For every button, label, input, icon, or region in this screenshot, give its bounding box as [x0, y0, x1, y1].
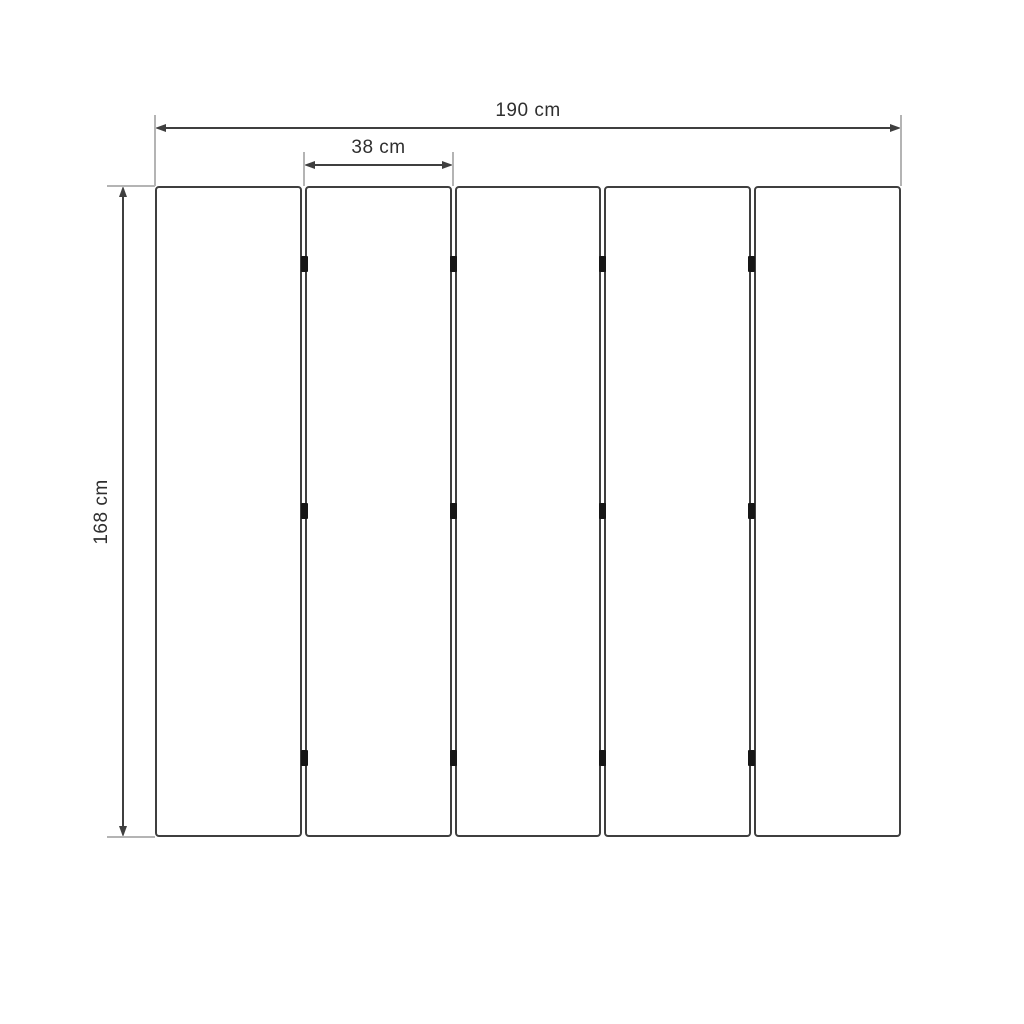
- panel-width-dimension-line: [308, 164, 449, 166]
- panel: [455, 186, 602, 837]
- hinge: [450, 256, 457, 272]
- hinge: [748, 503, 755, 519]
- arrow-left-icon: [304, 161, 315, 169]
- total-width-dimension-line: [160, 127, 896, 129]
- extension-line: [107, 185, 155, 187]
- panel: [754, 186, 901, 837]
- height-dimension-line: [122, 192, 124, 831]
- panel: [604, 186, 751, 837]
- height-label: 168 cm: [91, 442, 113, 582]
- hinge: [599, 256, 606, 272]
- hinge: [301, 503, 308, 519]
- hinge: [748, 750, 755, 766]
- hinge: [450, 503, 457, 519]
- hinge: [301, 750, 308, 766]
- total-width-label: 190 cm: [428, 100, 628, 122]
- extension-line: [303, 152, 305, 186]
- panel: [305, 186, 452, 837]
- folding-screen-dimension-diagram: 190 cm 38 cm 168 cm: [0, 0, 1024, 1024]
- hinge: [748, 256, 755, 272]
- panel-width-label: 38 cm: [308, 137, 449, 159]
- arrow-up-icon: [119, 186, 127, 197]
- extension-line: [900, 115, 902, 186]
- panels-row: [155, 186, 901, 837]
- hinge: [599, 750, 606, 766]
- hinge: [301, 256, 308, 272]
- arrow-left-icon: [155, 124, 166, 132]
- hinge: [599, 503, 606, 519]
- extension-line: [154, 115, 156, 186]
- extension-line: [107, 836, 155, 838]
- extension-line: [452, 152, 454, 186]
- hinge: [450, 750, 457, 766]
- panel: [155, 186, 302, 837]
